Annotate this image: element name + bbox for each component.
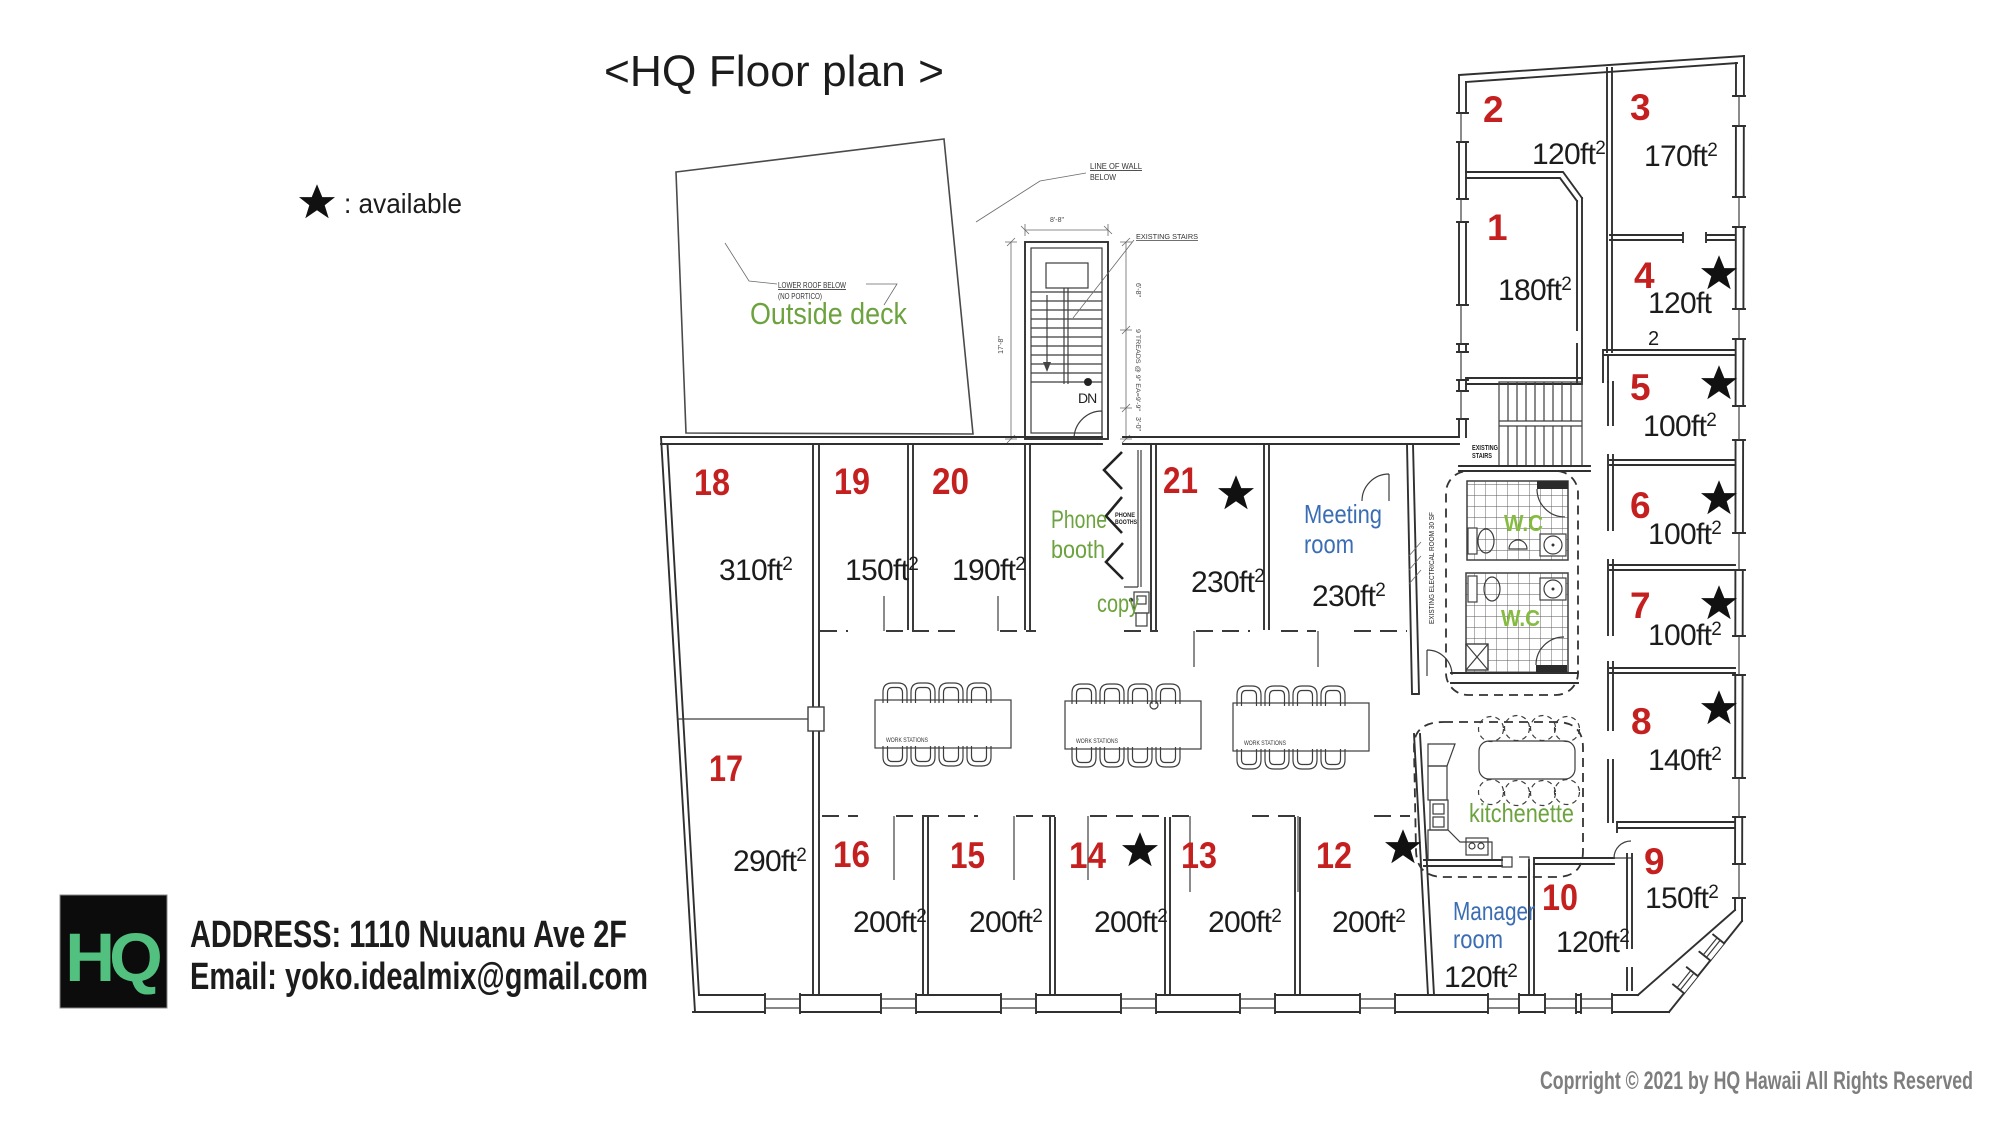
svg-text:200ft2: 200ft2: [1332, 906, 1405, 939]
svg-text:DN: DN: [1078, 390, 1096, 406]
svg-text:8: 8: [1631, 701, 1652, 742]
svg-text:20: 20: [932, 461, 969, 502]
svg-text:120ft2: 120ft2: [1556, 926, 1629, 959]
svg-text:Manager: Manager: [1453, 896, 1535, 926]
svg-text:EXISTING: EXISTING: [1472, 445, 1498, 452]
svg-text:14: 14: [1069, 835, 1106, 876]
svg-text:Coprright © 2021 by HQ Hawaii: Coprright © 2021 by HQ Hawaii All Rights…: [1540, 1067, 1973, 1095]
svg-text:(NO PORTICO): (NO PORTICO): [778, 291, 822, 301]
svg-text:120ft: 120ft: [1648, 287, 1713, 320]
svg-text:170ft2: 170ft2: [1644, 140, 1717, 173]
svg-text:2: 2: [1648, 328, 1659, 350]
svg-text:3: 3: [1630, 87, 1651, 128]
svg-text:Outside deck: Outside deck: [750, 296, 907, 331]
svg-text:booth: booth: [1051, 536, 1105, 564]
svg-text:200ft2: 200ft2: [969, 906, 1042, 939]
svg-text:180ft2: 180ft2: [1498, 274, 1571, 307]
svg-text:200ft2: 200ft2: [853, 906, 926, 939]
svg-text:120ft2: 120ft2: [1444, 961, 1517, 994]
svg-text:9: 9: [1644, 841, 1665, 882]
svg-text:10: 10: [1542, 877, 1578, 918]
svg-text:5: 5: [1630, 367, 1651, 408]
svg-text:Phone: Phone: [1051, 506, 1107, 534]
svg-text:BOOTHS: BOOTHS: [1115, 520, 1137, 526]
svg-text:WORK STATIONS: WORK STATIONS: [1076, 738, 1119, 745]
svg-text:WORK STATIONS: WORK STATIONS: [886, 737, 929, 744]
svg-text:PHONE: PHONE: [1115, 513, 1135, 519]
svg-text:: available: : available: [344, 188, 462, 219]
svg-text:room: room: [1304, 529, 1354, 559]
svg-text:ADDRESS: 1110 Nuuanu Ave 2F: ADDRESS: 1110 Nuuanu Ave 2F: [190, 914, 627, 956]
svg-text:room: room: [1453, 924, 1503, 954]
svg-text:EXISTING ELECTRICAL ROOM 30 SF: EXISTING ELECTRICAL ROOM 30 SF: [1427, 512, 1436, 624]
svg-text:150ft2: 150ft2: [845, 554, 918, 587]
svg-text:WORK STATIONS: WORK STATIONS: [1244, 740, 1287, 747]
svg-text:290ft2: 290ft2: [733, 845, 806, 878]
svg-text:21: 21: [1163, 460, 1198, 501]
svg-text:LINE OF WALL: LINE OF WALL: [1090, 161, 1142, 171]
svg-text:BELOW: BELOW: [1090, 172, 1116, 182]
svg-text:EXISTING STAIRS: EXISTING STAIRS: [1136, 234, 1198, 241]
svg-text:W.C: W.C: [1501, 605, 1540, 631]
svg-text:<HQ Floor plan >: <HQ Floor plan >: [604, 47, 944, 96]
svg-text:1: 1: [1487, 207, 1508, 248]
svg-text:Meeting: Meeting: [1304, 499, 1382, 529]
svg-text:230ft2: 230ft2: [1312, 580, 1385, 613]
svg-text:8'-8": 8'-8": [1050, 217, 1064, 224]
svg-text:140ft2: 140ft2: [1648, 744, 1721, 777]
svg-text:15: 15: [950, 835, 985, 876]
svg-text:9 TREADS @ 9" EA=9'-9": 9 TREADS @ 9" EA=9'-9": [1134, 329, 1141, 412]
svg-text:200ft2: 200ft2: [1208, 906, 1281, 939]
svg-text:Email: yoko.idealmix@gmail.com: Email: yoko.idealmix@gmail.com: [190, 956, 648, 998]
svg-text:18: 18: [694, 462, 730, 503]
svg-text:100ft2: 100ft2: [1648, 518, 1721, 551]
svg-text:6'-8": 6'-8": [1134, 283, 1141, 297]
svg-text:200ft2: 200ft2: [1094, 906, 1167, 939]
svg-text:HQ: HQ: [65, 919, 160, 996]
svg-text:13: 13: [1181, 835, 1217, 876]
svg-text:19: 19: [834, 461, 870, 502]
svg-text:100ft2: 100ft2: [1643, 410, 1716, 443]
svg-text:LOWER ROOF BELOW: LOWER ROOF BELOW: [778, 280, 846, 290]
svg-text:17: 17: [709, 748, 743, 789]
svg-text:150ft2: 150ft2: [1645, 882, 1718, 915]
svg-text:100ft2: 100ft2: [1648, 619, 1721, 652]
svg-text:copy: copy: [1097, 590, 1139, 618]
svg-text:190ft2: 190ft2: [952, 554, 1025, 587]
svg-text:310ft2: 310ft2: [719, 554, 792, 587]
svg-text:3'-0": 3'-0": [1134, 417, 1141, 431]
svg-text:STAIRS: STAIRS: [1472, 453, 1492, 460]
svg-text:16: 16: [833, 834, 870, 875]
svg-text:W.C: W.C: [1504, 510, 1543, 536]
svg-text:kitchenette: kitchenette: [1469, 798, 1574, 828]
svg-text:17'-8": 17'-8": [998, 336, 1005, 354]
svg-text:230ft2: 230ft2: [1191, 566, 1264, 599]
svg-text:12: 12: [1316, 835, 1352, 876]
svg-text:2: 2: [1483, 89, 1504, 130]
svg-text:120ft2: 120ft2: [1532, 138, 1605, 171]
